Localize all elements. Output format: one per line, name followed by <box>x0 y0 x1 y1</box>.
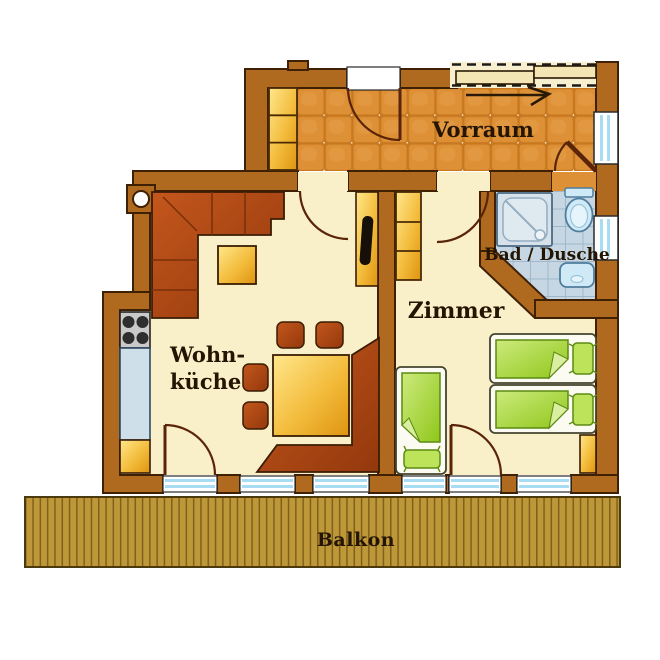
wohnkueche-label-line1: Wohn- <box>169 342 245 367</box>
sliding-panel <box>534 66 596 78</box>
wohnkueche-label-line2: küche <box>170 369 241 394</box>
pillow <box>573 394 593 425</box>
toilet <box>565 188 593 232</box>
window <box>594 112 618 164</box>
sink <box>560 263 594 287</box>
pillow <box>573 343 593 374</box>
door-opening <box>298 172 348 191</box>
nightstand <box>580 435 596 473</box>
glazed-door <box>449 476 501 492</box>
wall-mid-c <box>490 171 552 191</box>
wall-bottom-pier3 <box>369 475 402 493</box>
zimmer-wardrobe <box>396 192 421 280</box>
door-opening <box>437 172 490 191</box>
shower <box>497 193 552 246</box>
chair <box>243 402 268 429</box>
wall-mid-b <box>348 171 437 191</box>
floor-plan: Balkon <box>0 0 660 660</box>
zimmer-label: Zimmer <box>408 298 505 324</box>
wall-bad-bottom <box>535 300 618 318</box>
double-bed <box>490 334 597 433</box>
window <box>240 476 295 492</box>
chair <box>277 322 304 348</box>
wall-divider <box>378 191 395 475</box>
sliding-panel <box>456 71 534 84</box>
wall-top-bump <box>288 61 308 70</box>
window <box>402 476 446 492</box>
kitchen-line <box>120 312 150 473</box>
column-circle <box>133 191 149 207</box>
balcony: Balkon <box>25 497 620 567</box>
dining-table <box>273 355 349 436</box>
wall-bottom-pier1 <box>217 475 240 493</box>
kitchen-counter <box>120 348 150 440</box>
window <box>313 476 369 492</box>
wall-top-b <box>400 69 457 88</box>
chair <box>243 364 268 391</box>
hall-wardrobe <box>269 88 297 170</box>
window <box>517 476 571 492</box>
chair <box>316 322 343 348</box>
door-opening <box>347 67 400 90</box>
tv-sideboard <box>356 192 378 286</box>
coffee-table <box>218 246 256 284</box>
pillow <box>404 450 440 468</box>
shower-drain <box>535 230 545 240</box>
base-cabinet <box>120 440 150 473</box>
balcony-label: Balkon <box>317 529 395 551</box>
wall-bottom-pier5 <box>501 475 517 493</box>
vorraum-label: Vorraum <box>431 117 534 142</box>
wall-bottom-pier2 <box>295 475 313 493</box>
glazed-door <box>163 476 217 492</box>
wall-bottom-right <box>571 475 618 493</box>
bad-label: Bad / Dusche <box>484 245 610 265</box>
single-bed <box>396 367 446 474</box>
